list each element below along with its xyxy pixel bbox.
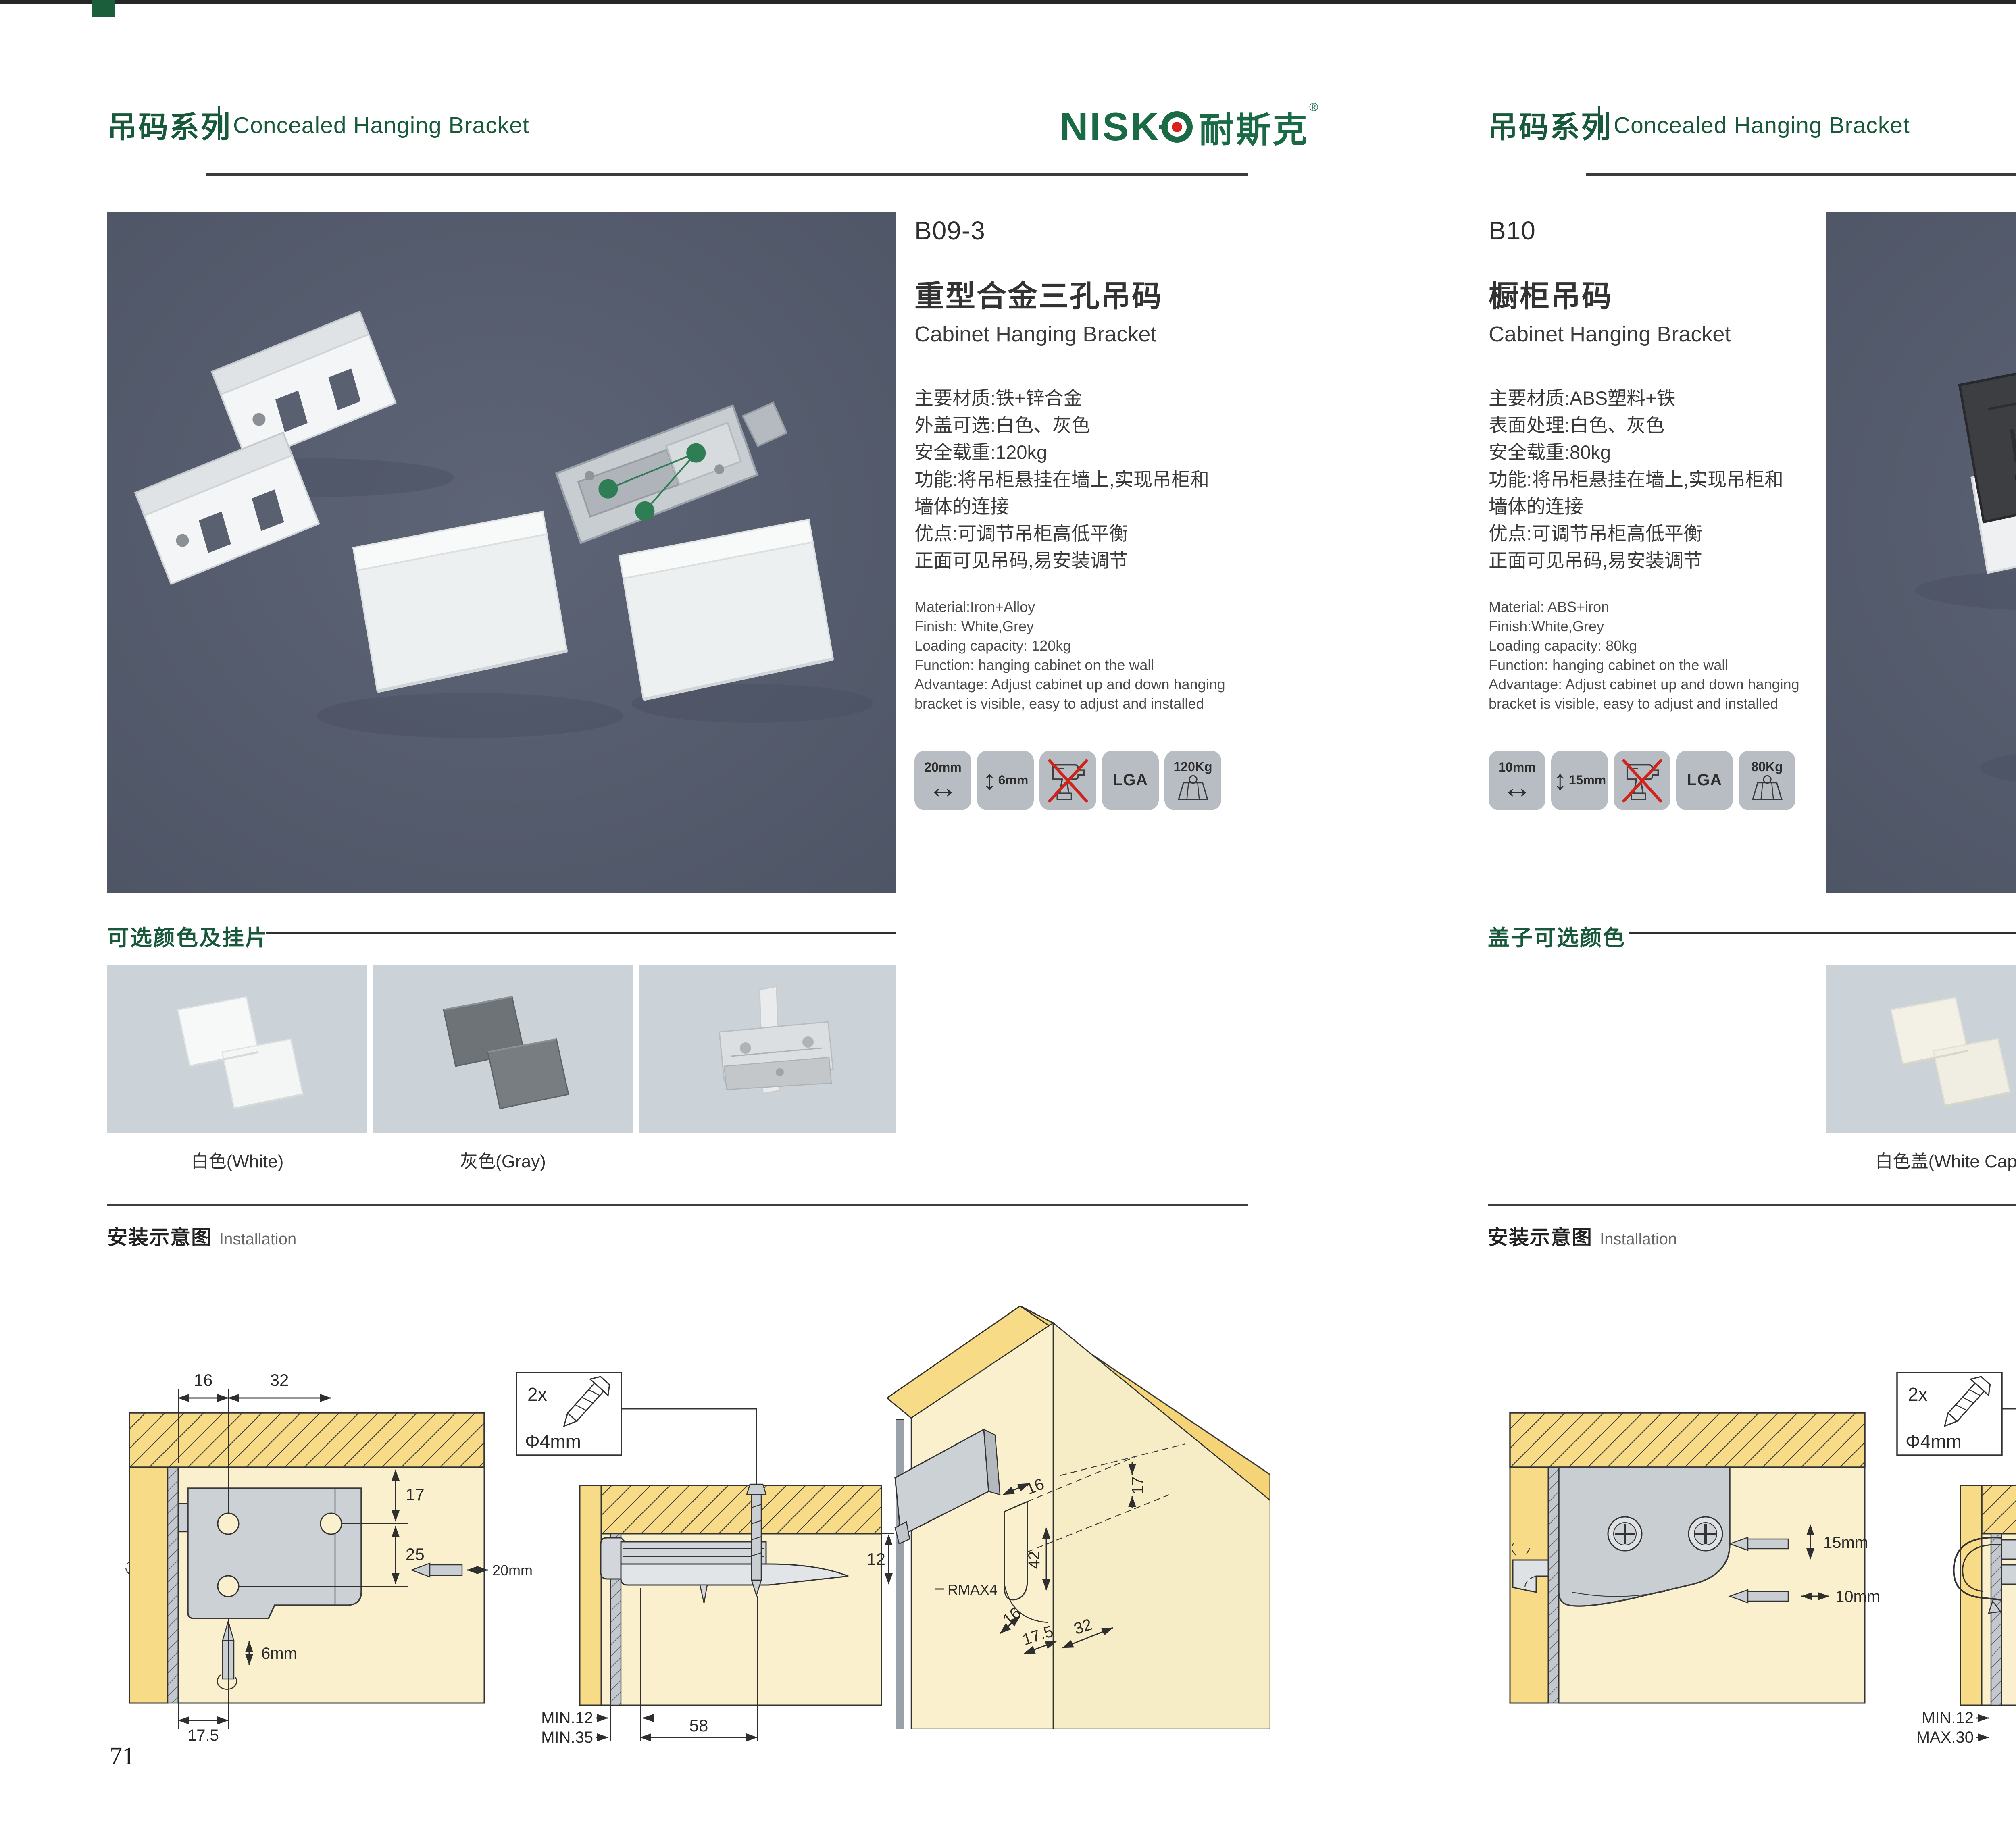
swatch-label-white-cap: 白色盖(White Cap) <box>1826 1147 2016 1173</box>
swatch-gray <box>373 965 633 1133</box>
phillips-screw-icon <box>1608 1517 1642 1551</box>
spec-line: 主要材质:铁+锌合金 <box>914 385 1253 412</box>
spec-line: Loading capacity: 80kg <box>1489 636 1827 655</box>
product-info-b09-3: B09-3 重型合金三孔吊码 Cabinet Hanging Bracket 主… <box>914 216 1253 810</box>
installation-diagram-3: 17 16 42 RMAX4 16 17.5 32 <box>887 1302 1270 1729</box>
dim-label: 25 <box>406 1545 425 1564</box>
product-photo-b10-illustration <box>1826 212 2016 893</box>
product-code: B10 <box>1489 216 1827 245</box>
spec-line: Function: hanging cabinet on the wall <box>1489 655 1827 675</box>
horizontal-arrow-icon: ↔ <box>928 775 958 801</box>
spec-line: bracket is visible, easy to adjust and i… <box>1489 694 1827 713</box>
spec-line: 安全载重:120kg <box>914 439 1253 466</box>
spec-line: 表面处理:白色、灰色 <box>1489 412 1827 439</box>
brand-logo-latin: NISK <box>1060 104 1160 150</box>
product-photo-b09-3-illustration <box>107 212 896 893</box>
horizontal-arrow-icon: ↔ <box>1502 775 1533 801</box>
hanging-plate-illustration <box>639 965 896 1133</box>
badge-thickness-label: 15mm <box>1569 773 1606 788</box>
installation-diagram-1: 16 32 17 25 20mm 6mm 17.5 <box>107 1334 535 1745</box>
header-divider <box>1598 106 1600 140</box>
badge-thickness: ↕ 6mm <box>977 751 1034 810</box>
spec-line: 优点:可调节吊柜高低平衡 <box>914 520 1253 547</box>
product-photo-b09-3 <box>107 212 896 893</box>
dim-label: 16 <box>194 1371 213 1389</box>
colors-section-title: 盖子可选颜色 <box>1488 920 1626 952</box>
badge-thickness: ↕ 15mm <box>1551 751 1608 810</box>
dim-label: RMAX4 <box>948 1581 998 1598</box>
registered-mark: ® <box>1309 101 1318 114</box>
dim-label: 12 <box>866 1550 885 1568</box>
vertical-arrow-icon: ↕ <box>1553 768 1567 792</box>
installation-title-cn: 安装示意图 <box>1488 1226 1593 1249</box>
page-number: 71 <box>110 1742 135 1771</box>
page72-series-title-cn: 吊码系列 <box>1488 103 1612 146</box>
spec-line: 墙体的连接 <box>914 493 1253 520</box>
product-code: B09-3 <box>914 216 1253 245</box>
spec-line: 功能:将吊柜悬挂在墙上,实现吊柜和 <box>914 466 1253 493</box>
spec-line: 安全载重:80kg <box>1489 439 1827 466</box>
spec-line: 主要材质:ABS塑料+铁 <box>1489 385 1827 412</box>
dim-label: 17.5 <box>187 1726 219 1744</box>
spec-line: Loading capacity: 120kg <box>914 636 1253 655</box>
swatch-bracket <box>639 965 896 1133</box>
gray-caps-illustration <box>373 965 633 1133</box>
specs-cn: 主要材质:ABS塑料+铁 表面处理:白色、灰色 安全载重:80kg 功能:将吊柜… <box>1489 385 1827 574</box>
product-name-en: Cabinet Hanging Bracket <box>1489 322 1827 347</box>
dim-label: MIN.12 <box>1922 1709 1974 1727</box>
specs-cn: 主要材质:铁+锌合金 外盖可选:白色、灰色 安全载重:120kg 功能:将吊柜悬… <box>914 385 1253 574</box>
section-separator <box>107 1204 1248 1206</box>
badge-load-label: 120Kg <box>1173 759 1212 774</box>
screw-dia-label: Φ4mm <box>1906 1431 1962 1452</box>
dim-label: 42 <box>1025 1551 1043 1569</box>
swatch-white-cap <box>1826 965 2016 1133</box>
badge-no-drill <box>1614 751 1670 810</box>
spec-line: Finish: White,Grey <box>914 617 1253 636</box>
dim-label: MAX.30 <box>1916 1728 1974 1745</box>
badge-width: 20mm ↔ <box>914 751 971 810</box>
badge-cert-label: LGA <box>1113 771 1148 789</box>
badge-load: 120Kg <box>1164 751 1221 810</box>
spec-line: Material:Iron+Alloy <box>914 597 1253 617</box>
brand-logo-o-icon <box>1161 111 1193 143</box>
swatch-label-gray: 灰色(Gray) <box>373 1147 633 1173</box>
dim-label: MIN.12 <box>541 1709 593 1727</box>
product-name-cn: 橱柜吊码 <box>1489 272 1827 315</box>
header-divider <box>218 106 220 140</box>
installation-header: 安装示意图Installation <box>107 1221 296 1250</box>
weight-icon <box>1749 774 1786 801</box>
badge-width: 10mm ↔ <box>1489 751 1545 810</box>
page71-series-title-en: Concealed Hanging Bracket <box>233 112 529 139</box>
installation-diagram-4: 15mm 10mm <box>1488 1334 1891 1745</box>
spec-line: 正面可见吊码,易安装调节 <box>1489 547 1827 574</box>
feature-badges: 10mm ↔ ↕ 15mm LGA 80Kg <box>1489 751 1827 810</box>
colors-section-title: 可选颜色及挂片 <box>107 920 268 952</box>
badge-thickness-label: 6mm <box>998 773 1029 788</box>
badge-certification: LGA <box>1102 751 1159 810</box>
swatch-label-white: 白色(White) <box>107 1147 367 1173</box>
specs-en: Material:Iron+Alloy Finish: White,Grey L… <box>914 597 1253 713</box>
badge-load-label: 80Kg <box>1751 759 1783 774</box>
spec-line: Finish:White,Grey <box>1489 617 1827 636</box>
spec-line: Advantage: Adjust cabinet up and down ha… <box>1489 675 1827 694</box>
spec-line: Advantage: Adjust cabinet up and down ha… <box>914 675 1253 694</box>
swatch-white <box>107 965 367 1133</box>
specs-en: Material: ABS+iron Finish:White,Grey Loa… <box>1489 597 1827 713</box>
screw-qty-label: 2x <box>527 1384 547 1405</box>
spec-line: bracket is visible, easy to adjust and i… <box>914 694 1253 713</box>
screw-dia-label: Φ4mm <box>525 1431 581 1452</box>
section-separator <box>1488 1204 2016 1206</box>
page72-series-title-en: Concealed Hanging Bracket <box>1614 112 1910 139</box>
brand-logo-cn: 耐斯克 <box>1199 102 1309 152</box>
installation-title-en: Installation <box>1600 1230 1677 1248</box>
dim-label: 6mm <box>261 1645 297 1662</box>
section-line <box>1629 932 2016 934</box>
section-line <box>266 932 896 934</box>
no-drill-icon <box>1047 757 1089 803</box>
white-cap-illustration <box>1826 965 2016 1133</box>
spec-line: 优点:可调节吊柜高低平衡 <box>1489 520 1827 547</box>
badge-no-drill <box>1039 751 1096 810</box>
product-name-en: Cabinet Hanging Bracket <box>914 322 1253 347</box>
no-drill-icon <box>1621 757 1663 803</box>
catalog-spread: 吊码系列 Concealed Hanging Bracket NISK 耐斯克 … <box>0 0 2016 1847</box>
product-info-b10: B10 橱柜吊码 Cabinet Hanging Bracket 主要材质:AB… <box>1489 216 1827 810</box>
white-caps-illustration <box>107 965 367 1133</box>
installation-title-cn: 安装示意图 <box>107 1226 212 1249</box>
installation-diagram-2: 2x Φ4mm 12 <box>510 1334 898 1745</box>
screw-qty-label: 2x <box>1908 1384 1928 1405</box>
corner-accent <box>92 0 115 17</box>
spec-line: 墙体的连接 <box>1489 493 1827 520</box>
product-name-cn: 重型合金三孔吊码 <box>914 272 1253 315</box>
spec-line: 外盖可选:白色、灰色 <box>914 412 1253 439</box>
header-rule <box>1586 173 2016 176</box>
vertical-arrow-icon: ↕ <box>983 768 997 792</box>
dim-label: 17 <box>406 1485 425 1504</box>
spec-line: 正面可见吊码,易安装调节 <box>914 547 1253 574</box>
dim-label: 32 <box>270 1371 289 1389</box>
product-photo-b10 <box>1826 212 2016 893</box>
badge-certification: LGA <box>1676 751 1733 810</box>
top-border <box>0 0 2016 4</box>
badge-load: 80Kg <box>1739 751 1795 810</box>
badge-cert-label: LGA <box>1687 771 1722 789</box>
dim-label: 58 <box>689 1716 708 1735</box>
installation-header: 安装示意图Installation <box>1488 1221 1677 1250</box>
header-rule <box>206 173 1248 176</box>
installation-diagram-5: 2x Φ4mm 18 <box>1891 1334 2016 1745</box>
weight-icon <box>1175 774 1212 801</box>
brand-logo: NISK 耐斯克 ® <box>1060 102 1318 152</box>
spec-line: Material: ABS+iron <box>1489 597 1827 617</box>
dim-label: MIN.35 <box>541 1728 593 1745</box>
phillips-screw-icon <box>1689 1517 1722 1551</box>
dim-label: 10mm <box>1835 1588 1880 1606</box>
dim-label: 15mm <box>1823 1534 1868 1552</box>
feature-badges: 20mm ↔ ↕ 6mm LGA 120Kg <box>914 751 1253 810</box>
spec-line: Function: hanging cabinet on the wall <box>914 655 1253 675</box>
spec-line: 功能:将吊柜悬挂在墙上,实现吊柜和 <box>1489 466 1827 493</box>
installation-title-en: Installation <box>219 1230 296 1248</box>
dim-label: 17 <box>1129 1477 1147 1495</box>
page71-series-title-cn: 吊码系列 <box>107 103 231 146</box>
